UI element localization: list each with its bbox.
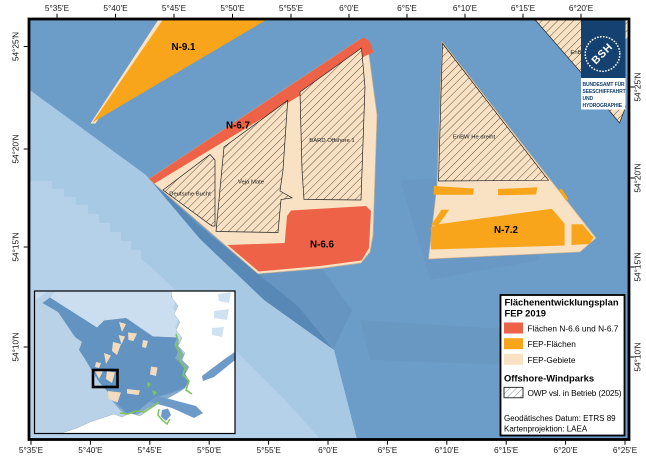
svg-text:BUNDESAMT FÜR: BUNDESAMT FÜR [583, 81, 626, 88]
svg-text:5°50'E: 5°50'E [220, 3, 245, 13]
svg-text:6°0'E: 6°0'E [339, 3, 359, 13]
svg-text:6°5'E: 6°5'E [397, 3, 417, 13]
svg-text:54°25'N: 54°25'N [633, 72, 643, 101]
svg-text:Geodätisches Datum: ETRS 89: Geodätisches Datum: ETRS 89 [504, 414, 616, 423]
svg-text:6°5'E: 6°5'E [378, 445, 398, 455]
svg-text:54°25'N: 54°25'N [11, 32, 21, 61]
svg-text:54°10'N: 54°10'N [633, 342, 643, 371]
svg-text:6°15'E: 6°15'E [494, 445, 519, 455]
svg-text:N-6.7: N-6.7 [226, 121, 251, 132]
svg-text:N-7.2: N-7.2 [494, 225, 519, 236]
svg-text:6°20'E: 6°20'E [553, 445, 578, 455]
svg-text:N-9.1: N-9.1 [172, 42, 197, 53]
svg-text:6°0'E: 6°0'E [318, 445, 338, 455]
svg-text:UND: UND [583, 96, 594, 102]
svg-text:5°40'E: 5°40'E [78, 445, 103, 455]
svg-text:5°35'E: 5°35'E [45, 3, 70, 13]
svg-text:HYDROGRAPHIE: HYDROGRAPHIE [583, 103, 623, 109]
svg-text:FEP 2019: FEP 2019 [505, 308, 547, 319]
svg-text:OWP vsl. in Betrieb (2025): OWP vsl. in Betrieb (2025) [528, 388, 622, 398]
svg-text:54°20'N: 54°20'N [11, 134, 21, 163]
svg-text:5°35'E: 5°35'E [19, 445, 44, 455]
svg-text:Veja Mate: Veja Mate [238, 180, 265, 186]
svg-text:54°15'N: 54°15'N [11, 232, 21, 261]
svg-text:5°40'E: 5°40'E [103, 3, 128, 13]
svg-text:N-6.6: N-6.6 [310, 240, 335, 251]
svg-text:Flächen N-6.6 und N-6.7: Flächen N-6.6 und N-6.7 [528, 324, 619, 334]
svg-text:6°10'E: 6°10'E [435, 445, 460, 455]
svg-text:Deutsche Bucht: Deutsche Bucht [169, 192, 211, 198]
svg-text:6°20'E: 6°20'E [569, 3, 594, 13]
svg-text:5°55'E: 5°55'E [279, 3, 304, 13]
svg-text:FEP-Gebiete: FEP-Gebiete [528, 355, 576, 365]
svg-text:Kartenprojektion: LAEA: Kartenprojektion: LAEA [504, 425, 588, 434]
svg-text:EnB: EnB [570, 50, 581, 56]
svg-text:54°10'N: 54°10'N [11, 332, 21, 361]
svg-text:6°15'E: 6°15'E [511, 3, 536, 13]
svg-text:Flächenentwicklungsplan: Flächenentwicklungsplan [505, 297, 619, 308]
svg-text:54°20'N: 54°20'N [633, 163, 643, 192]
svg-text:5°45'E: 5°45'E [162, 3, 187, 13]
svg-text:5°45'E: 5°45'E [138, 445, 163, 455]
svg-text:5°50'E: 5°50'E [197, 445, 222, 455]
svg-text:54°15'N: 54°15'N [633, 252, 643, 281]
svg-text:BARD Offshore 1: BARD Offshore 1 [309, 138, 354, 144]
svg-text:FEP-Flächen: FEP-Flächen [528, 339, 577, 349]
svg-text:6°10'E: 6°10'E [453, 3, 478, 13]
svg-text:Offshore-Windparks: Offshore-Windparks [504, 373, 594, 384]
svg-text:SEESCHIFFFAHRT: SEESCHIFFFAHRT [583, 89, 626, 95]
svg-text:5°55'E: 5°55'E [256, 445, 281, 455]
svg-text:6°25'E: 6°25'E [613, 445, 638, 455]
svg-text:EnBW He dreiht: EnBW He dreiht [453, 135, 496, 141]
